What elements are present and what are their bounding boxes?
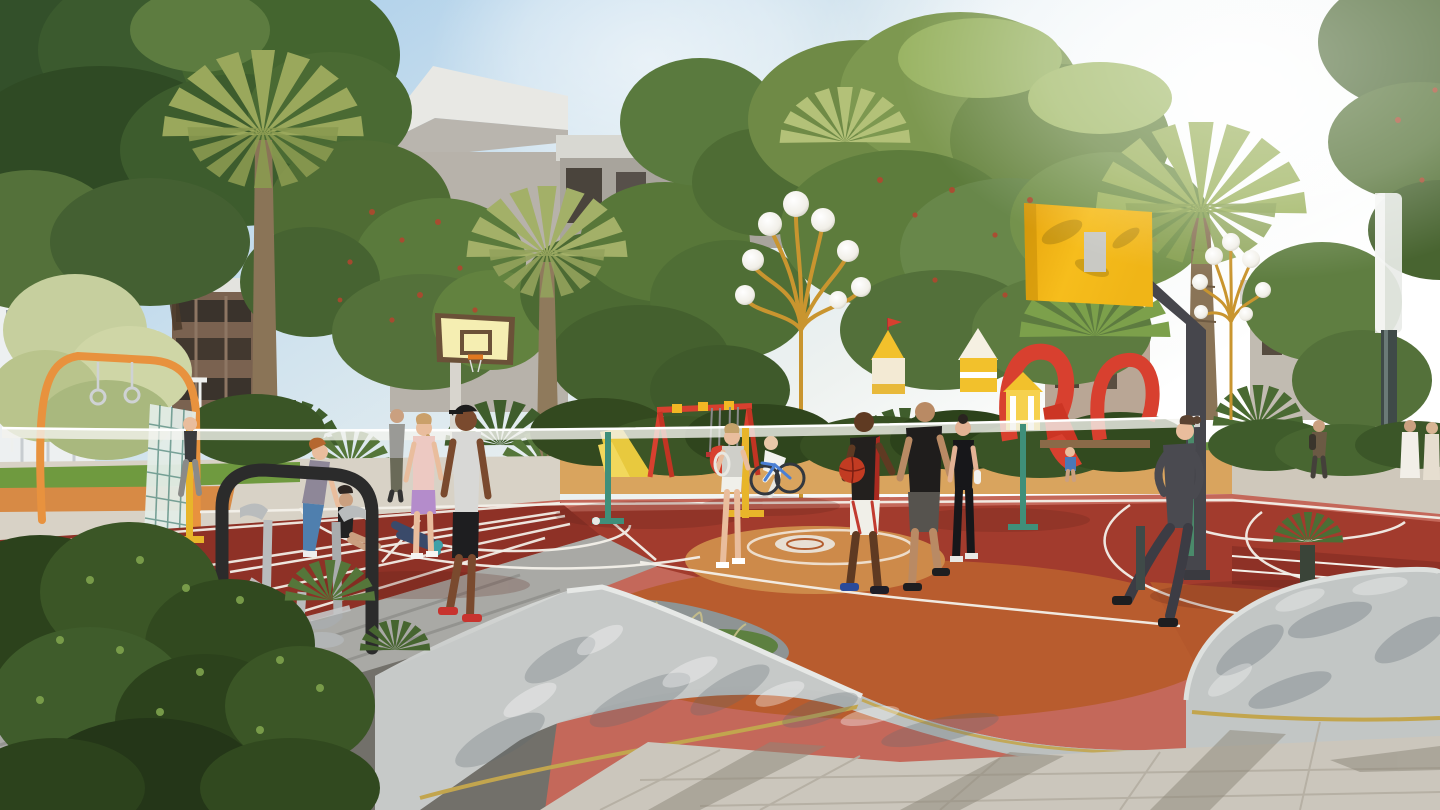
playground-deck xyxy=(1040,440,1150,448)
net-post-yellow-2 xyxy=(742,428,749,518)
court-logo xyxy=(775,535,835,553)
net-post-teal-2 xyxy=(1020,424,1026,530)
bollard xyxy=(1136,526,1145,590)
net-post-teal-1 xyxy=(605,432,611,524)
park-rendering: Sunny community sports park rendering wi… xyxy=(0,0,1440,810)
scene-canvas: Sunny community sports park rendering wi… xyxy=(0,0,1440,810)
